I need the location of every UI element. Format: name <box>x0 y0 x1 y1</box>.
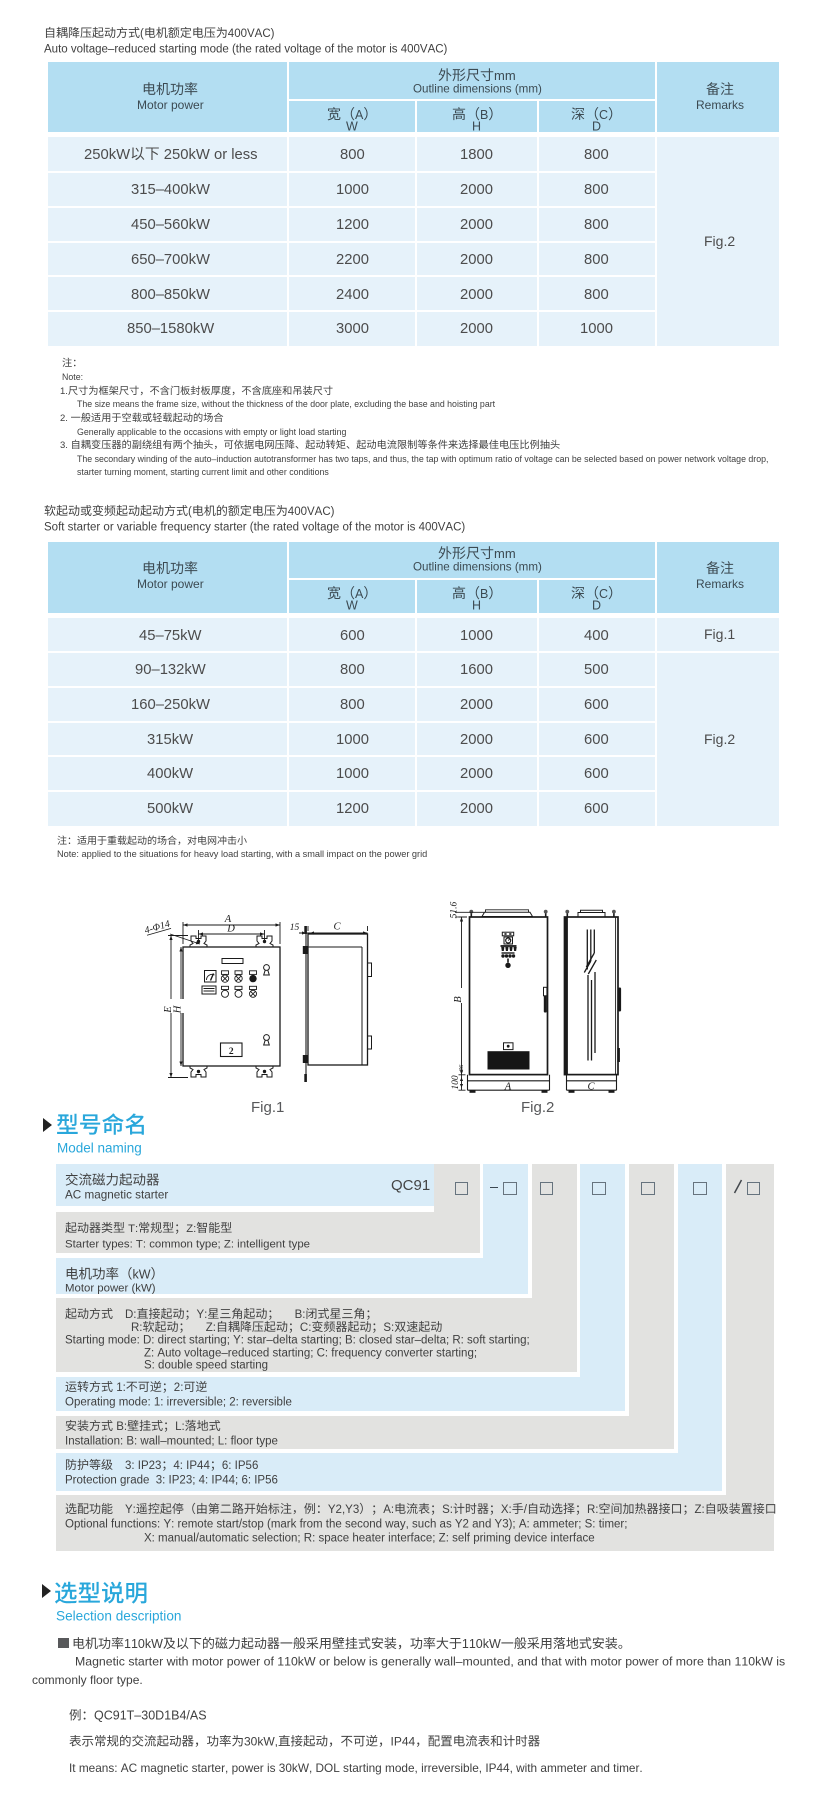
svg-text:S: double speed starting: S: double speed starting <box>144 1360 268 1372</box>
svg-text:4-Φ14: 4-Φ14 <box>143 919 171 937</box>
svg-text:800: 800 <box>584 147 609 163</box>
svg-text:800: 800 <box>584 182 609 198</box>
svg-text:Soft starter or variable frequ: Soft starter or variable frequency start… <box>44 522 465 534</box>
svg-text:2000: 2000 <box>460 286 493 302</box>
svg-text:Fig.2: Fig.2 <box>704 731 735 747</box>
svg-text:800: 800 <box>584 251 609 267</box>
svg-text:1000: 1000 <box>336 766 369 782</box>
svg-text:2200: 2200 <box>336 251 369 267</box>
svg-text:110kW: 110kW <box>462 1637 501 1651</box>
svg-text:3.: 3. <box>60 440 71 451</box>
svg-text:Operating mode: 1: irreversibl: Operating mode: 1: irreversible; 2: reve… <box>65 1397 292 1409</box>
svg-text:It means: AC magnetic starter,: It means: AC magnetic starter, power is … <box>69 1761 643 1775</box>
svg-text:Remarks: Remarks <box>696 577 744 591</box>
svg-text:QC91: QC91 <box>391 1177 430 1194</box>
svg-text:315–400kW: 315–400kW <box>131 182 210 198</box>
svg-text:600: 600 <box>584 697 609 713</box>
svg-text:2.: 2. <box>60 413 71 424</box>
svg-text:Motor power: Motor power <box>137 577 204 591</box>
svg-text:1000: 1000 <box>336 182 369 198</box>
svg-text:C: C <box>333 922 341 933</box>
svg-text:Outline dimensions (mm): Outline dimensions (mm) <box>413 561 542 574</box>
svg-text:2000: 2000 <box>460 801 493 817</box>
svg-text:1.: 1. <box>60 386 68 397</box>
svg-text:450–560kW: 450–560kW <box>131 216 210 232</box>
svg-text:400kW: 400kW <box>147 766 193 782</box>
svg-text:D: D <box>592 120 601 134</box>
svg-text:600: 600 <box>584 731 609 747</box>
svg-text:850–1580kW: 850–1580kW <box>127 321 214 337</box>
svg-text:A: A <box>504 1081 512 1092</box>
svg-text:H: H <box>472 120 481 134</box>
svg-text:250kW or less: 250kW or less <box>159 147 257 163</box>
svg-text:500: 500 <box>584 662 609 678</box>
svg-text:Remarks: Remarks <box>696 98 744 112</box>
svg-text:commonly floor type.: commonly floor type. <box>32 1673 143 1687</box>
svg-text:400: 400 <box>584 627 609 643</box>
svg-text:Note: applied to the situation: Note: applied to the situations for heav… <box>57 849 427 859</box>
svg-text:800–850kW: 800–850kW <box>131 286 210 302</box>
svg-text:2000: 2000 <box>460 766 493 782</box>
svg-text:D: D <box>592 599 601 613</box>
svg-text:2: 2 <box>229 1047 234 1057</box>
svg-text:1000: 1000 <box>460 627 493 643</box>
svg-text:315kW: 315kW <box>147 731 193 747</box>
svg-text:Fig.2: Fig.2 <box>521 1099 554 1116</box>
svg-text:2000: 2000 <box>460 182 493 198</box>
svg-text:IP44: IP44 <box>391 1735 416 1749</box>
svg-text:600: 600 <box>584 801 609 817</box>
svg-text:800: 800 <box>584 286 609 302</box>
svg-text:Fig.1: Fig.1 <box>251 1099 284 1116</box>
svg-text:Fig.1: Fig.1 <box>704 626 735 642</box>
svg-text:2400: 2400 <box>336 286 369 302</box>
svg-text:2000: 2000 <box>460 731 493 747</box>
svg-text:D: D <box>226 924 235 935</box>
svg-text:Starter types: T: common type;: Starter types: T: common type; Z: intell… <box>65 1238 310 1250</box>
svg-text:QC91T–30D1B4/AS: QC91T–30D1B4/AS <box>94 1708 207 1722</box>
svg-text:Installation: B: wall–mounted;: Installation: B: wall–mounted; L: floor … <box>65 1436 278 1448</box>
svg-text:51.6: 51.6 <box>450 901 460 918</box>
svg-text:15: 15 <box>290 923 300 933</box>
svg-text:160–250kW: 160–250kW <box>131 697 210 713</box>
svg-text:1200: 1200 <box>336 216 369 232</box>
svg-text:X: manual/automatic selection;: X: manual/automatic selection; R: space … <box>144 1532 595 1544</box>
svg-text:B: B <box>453 996 464 1003</box>
svg-text:250kW: 250kW <box>84 147 130 163</box>
svg-text:starter turning moment, starti: starter turning moment, starting current… <box>77 467 329 477</box>
svg-text:Auto voltage–reduced starting: Auto voltage–reduced starting mode (the … <box>44 44 448 56</box>
svg-text:110kW: 110kW <box>124 1637 163 1651</box>
svg-text:Motor power (kW): Motor power (kW) <box>65 1282 156 1294</box>
svg-text:1200: 1200 <box>336 801 369 817</box>
svg-text:1600: 1600 <box>460 662 493 678</box>
svg-text:Selection description: Selection description <box>56 1608 181 1623</box>
svg-text:3000: 3000 <box>336 321 369 337</box>
svg-text:1000: 1000 <box>580 321 613 337</box>
svg-text:H: H <box>173 1004 184 1014</box>
svg-text:W: W <box>346 120 358 134</box>
svg-text:800: 800 <box>584 216 609 232</box>
svg-text:Model naming: Model naming <box>57 1141 142 1156</box>
svg-text:2000: 2000 <box>460 321 493 337</box>
svg-text:650–700kW: 650–700kW <box>131 251 210 267</box>
svg-text:Fig.2: Fig.2 <box>704 233 735 249</box>
svg-text:Protection grade 3: IP23; 4:: Protection grade 3: IP23; 4: IP44; 6: IP… <box>65 1474 278 1486</box>
svg-text:45–75kW: 45–75kW <box>139 627 202 643</box>
svg-text:800: 800 <box>340 697 365 713</box>
svg-text:30kW,: 30kW, <box>244 1735 278 1749</box>
svg-text:1800: 1800 <box>460 147 493 163</box>
svg-text:Outline dimensions (mm): Outline dimensions (mm) <box>413 82 542 95</box>
svg-text:2000: 2000 <box>460 697 493 713</box>
svg-text:600: 600 <box>584 766 609 782</box>
svg-text:W: W <box>346 599 358 613</box>
svg-text:800: 800 <box>340 147 365 163</box>
svg-text:H: H <box>472 599 481 613</box>
svg-text:The secondary winding of the a: The secondary winding of the auto–induct… <box>77 453 768 463</box>
svg-text:C: C <box>587 1081 595 1092</box>
svg-text:500kW: 500kW <box>147 801 193 817</box>
svg-text:100: 100 <box>451 1075 461 1090</box>
svg-text:Z:: Z: <box>695 1504 705 1516</box>
svg-text:Magnetic starter with motor po: Magnetic starter with motor power of 110… <box>75 1654 785 1668</box>
svg-text:2000: 2000 <box>460 216 493 232</box>
svg-text:2000: 2000 <box>460 251 493 267</box>
svg-text:36: 36 <box>458 1064 465 1072</box>
svg-text:Motor power: Motor power <box>137 98 204 112</box>
svg-text:AC magnetic starter: AC magnetic starter <box>65 1189 168 1202</box>
svg-text:800: 800 <box>340 662 365 678</box>
svg-text:90–132kW: 90–132kW <box>135 662 206 678</box>
svg-text:1000: 1000 <box>336 731 369 747</box>
svg-text:600: 600 <box>340 627 365 643</box>
